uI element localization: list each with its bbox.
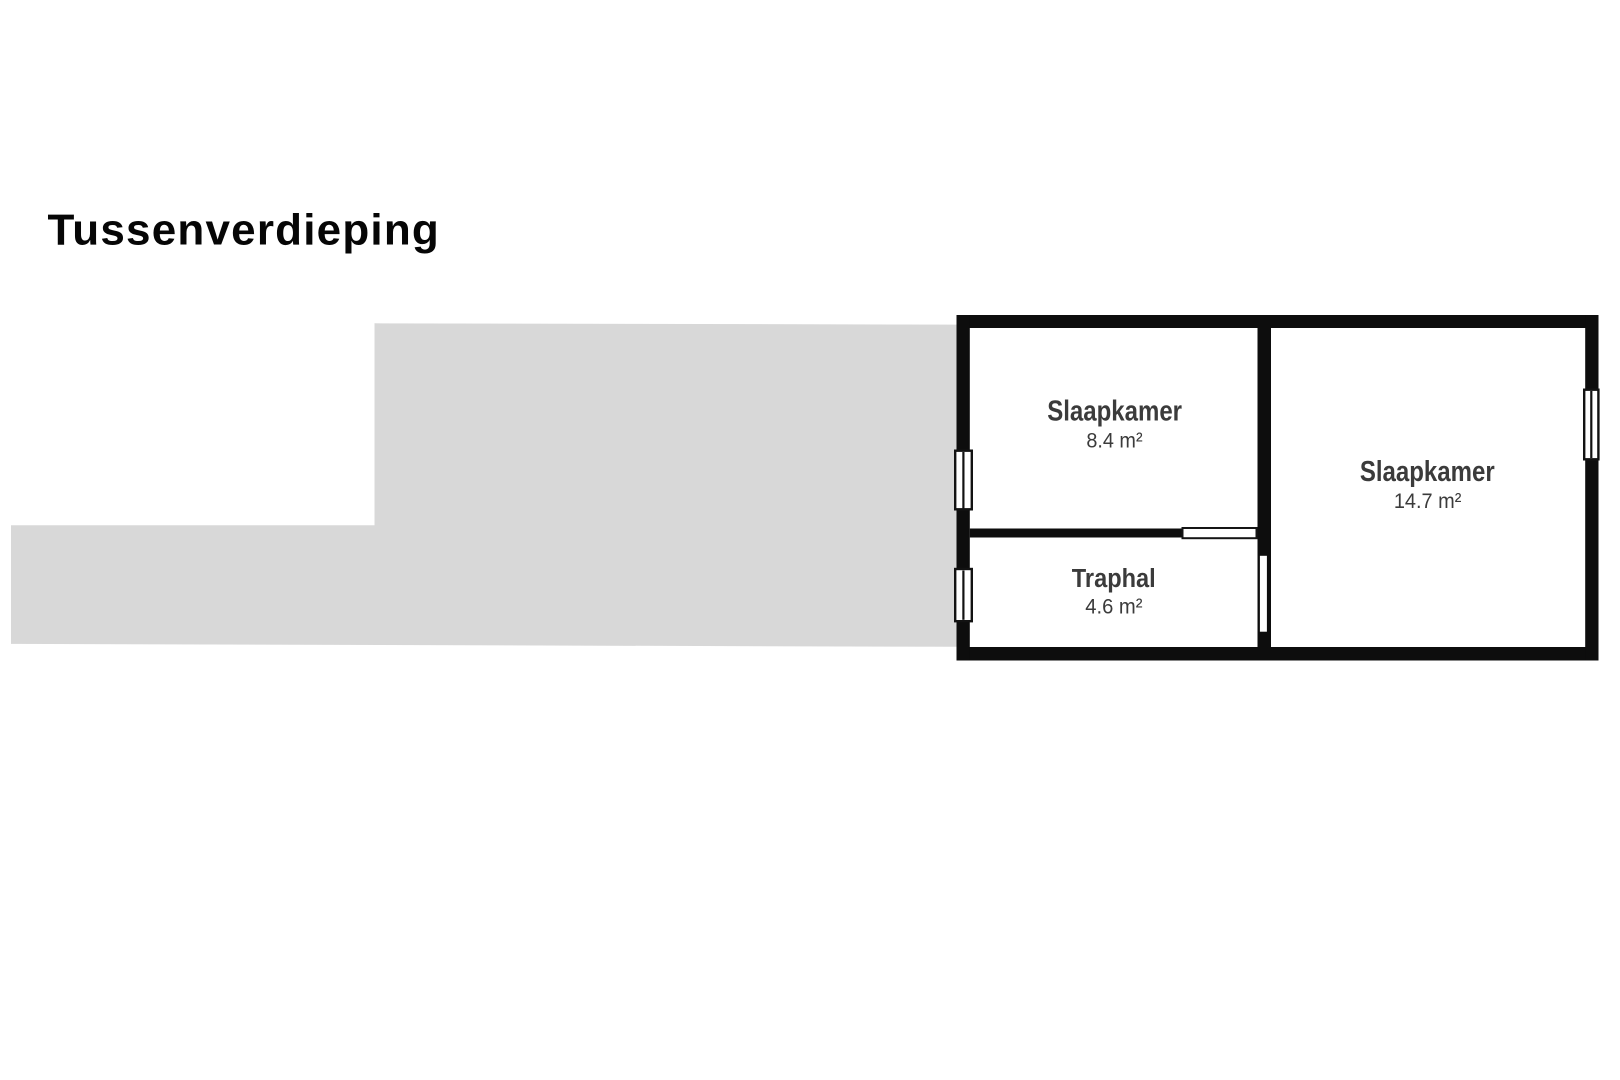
svg-text:Slaapkamer: Slaapkamer <box>1047 395 1182 427</box>
svg-text:8.4 m²: 8.4 m² <box>1086 430 1142 453</box>
svg-text:Traphal: Traphal <box>1072 565 1156 593</box>
svg-text:Slaapkamer: Slaapkamer <box>1360 455 1495 487</box>
svg-text:4.6 m²: 4.6 m² <box>1085 595 1142 618</box>
svg-text:14.7 m²: 14.7 m² <box>1394 490 1462 514</box>
svg-text:Tussenverdieping: Tussenverdieping <box>48 206 440 255</box>
